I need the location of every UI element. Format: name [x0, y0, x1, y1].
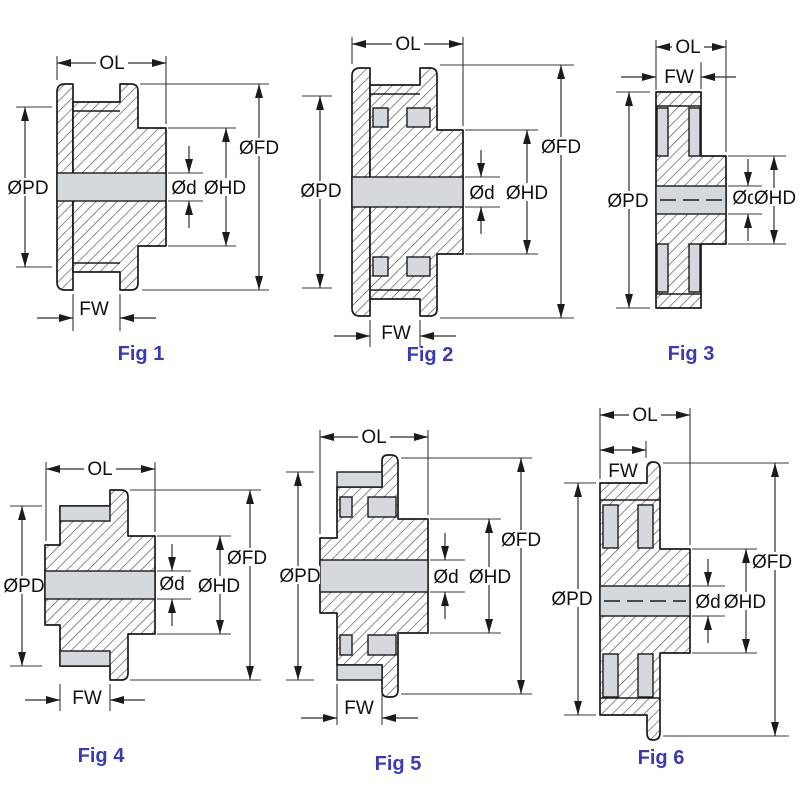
- fig5-rim-band-top: [337, 472, 382, 487]
- fig2-recess-bottom-right: [407, 257, 430, 276]
- fig3-hd-label: ØHD: [754, 188, 796, 209]
- fig6-slot-bottom-left: [603, 654, 618, 697]
- fig6-slot-bottom-right: [638, 654, 653, 697]
- fig5-recess-bottom-right: [368, 635, 396, 655]
- fig4-pd-label: ØPD: [3, 576, 44, 597]
- fig6-slot-top-left: [603, 505, 618, 548]
- fig1-fd-label: ØFD: [239, 138, 279, 159]
- fig2-recess-top-left: [373, 108, 388, 127]
- pulley-diagram-canvas: OL ØPD Ød ØHD ØFD FW Fig 1: [0, 0, 800, 800]
- fig5-bore: [320, 560, 428, 592]
- fig3-slot-top-right: [689, 108, 700, 156]
- fig2-recess-bottom-left: [373, 257, 388, 276]
- fig5-rim-band-bottom: [337, 665, 382, 680]
- fig5-pd-label: ØPD: [279, 566, 320, 587]
- fig2-ol-label: OL: [395, 34, 420, 55]
- fig6-fw-label: FW: [608, 461, 638, 482]
- fig1-d-label: Ød: [171, 178, 196, 199]
- fig3-slot-bottom-right: [689, 244, 700, 292]
- fig5-recess-top-left: [340, 497, 352, 517]
- fig3-slot-top-left: [657, 108, 668, 156]
- fig2-fd-label: ØFD: [541, 137, 581, 158]
- fig6-hd-label: ØHD: [724, 592, 766, 613]
- fig3-caption: Fig 3: [668, 343, 715, 365]
- fig5-recess-top-right: [368, 497, 396, 517]
- fig2-hd-label: ØHD: [506, 183, 548, 204]
- fig4-rim-band-bottom: [60, 651, 110, 666]
- fig3-fw-label: FW: [664, 67, 694, 88]
- fig1-group: OL ØPD Ød ØHD ØFD FW Fig 1: [7, 53, 281, 365]
- fig4-fd-label: ØFD: [227, 548, 267, 569]
- fig5-d-label: Ød: [433, 567, 458, 588]
- fig6-slot-top-right: [638, 505, 653, 548]
- fig1-bore: [57, 173, 166, 201]
- fig6-ol-label: OL: [632, 405, 657, 426]
- fig1-pd-label: ØPD: [7, 178, 48, 199]
- fig3-ol-label: OL: [675, 37, 700, 58]
- fig5-caption: Fig 5: [375, 753, 422, 775]
- fig1-caption: Fig 1: [118, 343, 165, 365]
- fig4-fw-label: FW: [72, 688, 102, 709]
- fig4-rim-band-top: [60, 506, 110, 521]
- fig5-recess-bottom-left: [340, 635, 352, 655]
- fig1-hd-label: ØHD: [204, 178, 246, 199]
- fig2-caption: Fig 2: [407, 344, 454, 366]
- fig3-group: OL FW ØPD Ød ØHD Fig 3: [606, 37, 797, 365]
- fig5-group: OL ØPD Ød ØHD ØFD FW Fig 5: [278, 427, 543, 775]
- fig3-pd-label: ØPD: [607, 191, 648, 212]
- fig5-ol-label: OL: [361, 427, 386, 448]
- fig6-d-label: Ød: [695, 592, 720, 613]
- fig5-fd-label: ØFD: [501, 530, 541, 551]
- fig1-fw-label: FW: [79, 299, 109, 320]
- fig2-pd-label: ØPD: [300, 181, 341, 202]
- fig6-group: OL FW ØPD Ød ØHD ØFD Fig 6: [550, 405, 794, 769]
- fig2-bore: [352, 177, 463, 207]
- fig2-fw-label: FW: [381, 323, 411, 344]
- fig4-ol-label: OL: [87, 459, 112, 480]
- fig5-fw-label: FW: [344, 698, 374, 719]
- fig3-slot-bottom-left: [657, 244, 668, 292]
- fig4-hd-label: ØHD: [198, 576, 240, 597]
- figure-sheet: OL ØPD Ød ØHD ØFD FW Fig 1: [0, 0, 800, 800]
- fig4-caption: Fig 4: [78, 745, 126, 767]
- fig2-d-label: Ød: [469, 183, 494, 204]
- fig2-group: OL ØPD Ød ØHD ØFD FW Fig 2: [300, 34, 583, 366]
- fig1-ol-label: OL: [99, 53, 124, 74]
- fig4-bore: [45, 571, 155, 599]
- fig4-group: OL ØPD Ød ØHD ØFD FW Fig 4: [2, 459, 269, 767]
- fig6-fd-label: ØFD: [752, 552, 792, 573]
- fig6-caption: Fig 6: [638, 747, 685, 769]
- fig2-recess-top-right: [407, 108, 430, 127]
- fig4-d-label: Ød: [159, 574, 184, 595]
- fig6-pd-label: ØPD: [551, 589, 592, 610]
- fig5-hd-label: ØHD: [469, 567, 511, 588]
